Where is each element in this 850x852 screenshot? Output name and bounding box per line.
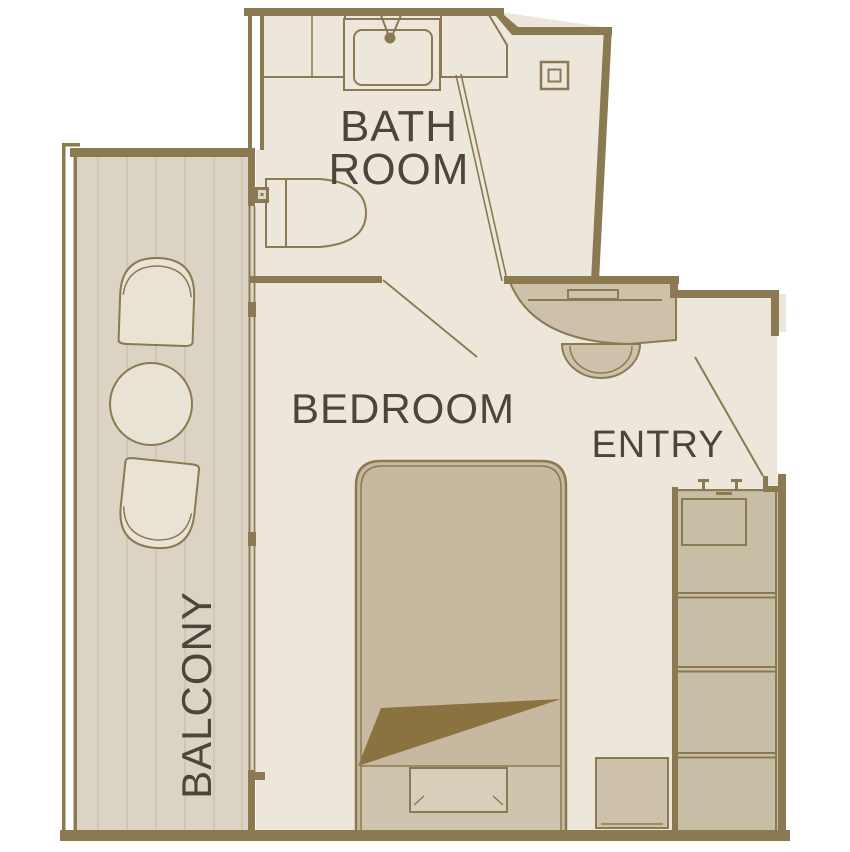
vanity-counter-left [262, 15, 345, 77]
entry-door-jamb-top [771, 290, 779, 336]
right-wall [778, 474, 786, 836]
door-mullion [248, 532, 256, 546]
bathroom-top-wall [244, 8, 504, 16]
stateroom-floorplan: BATH ROOM BEDROOM ENTRY BALCONY [0, 0, 850, 852]
desk-back-wall [504, 276, 679, 284]
bathroom-label-line1: BATH [340, 102, 458, 151]
wardrobe-side-wall [672, 487, 678, 832]
bed-bench [410, 768, 507, 812]
wardrobe [672, 487, 778, 832]
faucet-icon [385, 33, 396, 44]
lounge-chair-top [118, 257, 195, 347]
sink [344, 15, 440, 90]
balcony-top-wall [70, 148, 252, 157]
bedroom-label: BEDROOM [291, 385, 515, 432]
entry-top-wall [670, 290, 779, 298]
balcony-railing-outer [62, 143, 66, 836]
door-mullion [248, 302, 256, 317]
lounge-chair-bottom [117, 457, 200, 551]
desk-shelf [568, 290, 618, 299]
wardrobe-back-panel [775, 492, 777, 830]
balcony-railing-inner [74, 150, 78, 834]
balcony-label: BALCONY [173, 591, 220, 799]
entry-label: ENTRY [591, 424, 724, 466]
wall-cavity-gap [252, 10, 261, 150]
bathroom-label-line2: ROOM [329, 145, 470, 194]
wardrobe-handle [716, 492, 732, 495]
door-connector [255, 187, 269, 203]
bottom-wall [60, 830, 790, 841]
balcony-table [110, 363, 192, 445]
bathroom-bottom-wall [250, 276, 382, 283]
entry-door-opening [777, 332, 791, 478]
nightstand [596, 758, 668, 828]
bed [356, 461, 566, 833]
